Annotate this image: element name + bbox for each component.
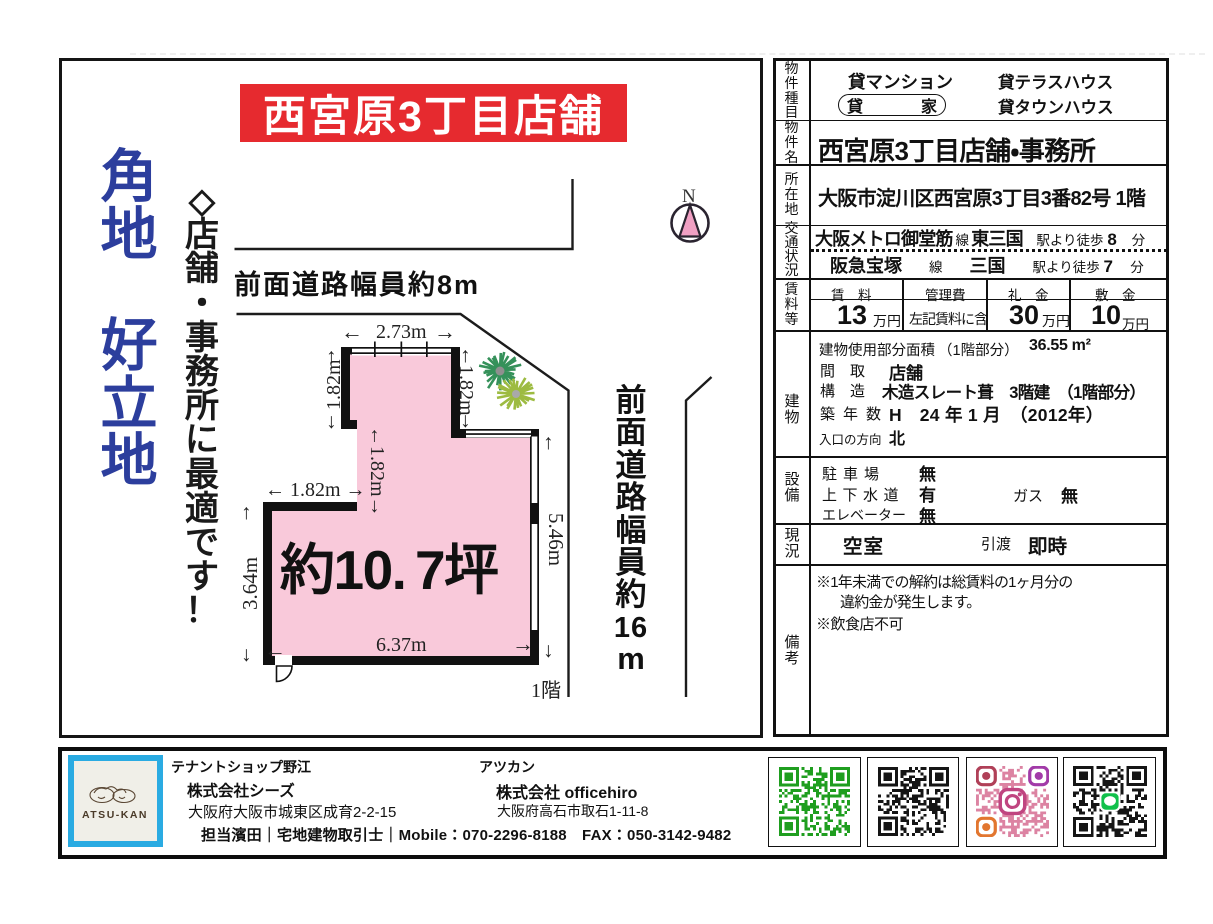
svg-text:1階: 1階 <box>531 679 561 702</box>
svg-text:2.73m: 2.73m <box>376 321 427 343</box>
svg-text:N: N <box>682 186 696 207</box>
svg-text:ATSU-KAN: ATSU-KAN <box>82 809 148 821</box>
svg-text:↓: ↓ <box>543 638 554 662</box>
svg-text:↓: ↓ <box>241 642 252 666</box>
svg-text:約10. 7坪: 約10. 7坪 <box>280 539 498 601</box>
svg-text:↑: ↑ <box>241 500 252 524</box>
svg-text:←1.82m→: ←1.82m→ <box>366 426 388 517</box>
svg-text:↑: ↑ <box>326 344 337 368</box>
svg-text:←: ← <box>341 319 363 344</box>
svg-text:→: → <box>512 631 534 656</box>
svg-text:↓: ↓ <box>460 408 471 432</box>
svg-text:5.46m: 5.46m <box>544 513 568 566</box>
svg-text:← 1.82m →: ← 1.82m → <box>265 479 366 501</box>
svg-text:3.64m: 3.64m <box>238 557 262 610</box>
svg-text:↑: ↑ <box>543 430 554 454</box>
svg-text:↑: ↑ <box>460 343 471 367</box>
svg-text:←: ← <box>264 637 286 662</box>
svg-text:→: → <box>434 319 456 344</box>
svg-text:6.37m: 6.37m <box>376 634 427 656</box>
svg-text:↓: ↓ <box>326 409 337 433</box>
